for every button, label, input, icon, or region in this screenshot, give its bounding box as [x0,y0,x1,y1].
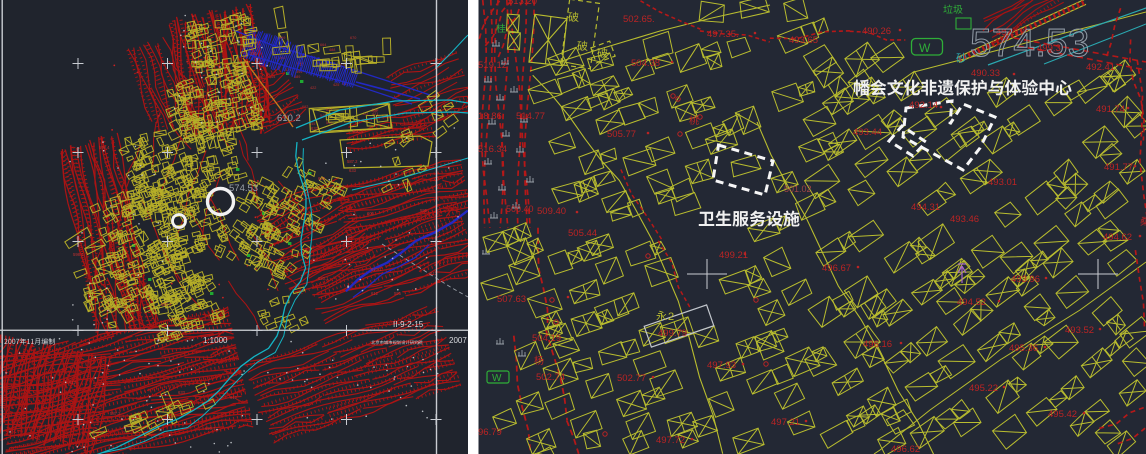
svg-text:612: 612 [230,395,238,400]
svg-text:497.93: 497.93 [707,360,736,371]
svg-text:18.86: 18.86 [478,111,502,122]
svg-text:514.77: 514.77 [516,111,545,122]
svg-text:504.38: 504.38 [631,58,660,69]
svg-text:493.65: 493.65 [789,35,818,46]
svg-text:610.2: 610.2 [277,113,301,124]
svg-text:605: 605 [188,88,196,93]
svg-text:505.44: 505.44 [568,228,597,239]
svg-text:633: 633 [318,176,326,181]
svg-text:620.1: 620.1 [371,267,382,272]
svg-text:504.19: 504.19 [532,333,561,344]
svg-text:2: 2 [668,311,674,323]
svg-text:497.21: 497.21 [771,417,800,428]
svg-text:670: 670 [350,36,356,40]
svg-text:491.74: 491.74 [1096,104,1125,115]
svg-text:495.36: 495.36 [1009,343,1038,354]
svg-text:501.02: 501.02 [784,184,812,194]
svg-text:612: 612 [69,380,77,385]
svg-text:574.53: 574.53 [970,22,1089,65]
svg-text:664: 664 [320,43,326,47]
svg-text:598.4: 598.4 [73,252,84,257]
svg-text:595: 595 [420,208,428,213]
svg-text:494.62: 494.62 [1103,232,1132,243]
svg-text:500.40: 500.40 [506,204,534,214]
svg-text:493.96: 493.96 [1011,274,1040,285]
svg-text:496.62: 496.62 [891,444,920,454]
svg-text:595: 595 [250,51,258,56]
svg-text:633: 633 [311,126,319,131]
svg-text:425: 425 [333,83,339,87]
svg-text:493.52: 493.52 [1065,325,1094,336]
svg-text:574.53: 574.53 [229,183,258,194]
svg-text:488: 488 [329,48,335,52]
svg-text:496.16: 496.16 [863,339,892,350]
svg-text:499.79: 499.79 [658,328,687,339]
svg-text:496.67: 496.67 [822,263,851,274]
svg-text:509.40: 509.40 [537,206,566,217]
svg-text:W: W [492,373,502,384]
svg-text:513.20: 513.20 [508,0,537,7]
svg-text:493.01: 493.01 [988,177,1017,188]
svg-text:502.77: 502.77 [617,373,646,384]
svg-text:620.1: 620.1 [205,426,216,431]
svg-text:505.77: 505.77 [607,129,636,140]
svg-text:499.21: 499.21 [719,250,748,261]
svg-text:516.34: 516.34 [478,144,507,155]
svg-text:492.41: 492.41 [1086,62,1115,73]
svg-text:507.63: 507.63 [497,294,526,305]
svg-text:620.1: 620.1 [353,129,364,134]
svg-text:633: 633 [178,390,186,395]
svg-text:490.33: 490.33 [971,68,1000,79]
svg-text:612: 612 [371,291,379,296]
svg-text:587.2: 587.2 [161,302,172,307]
svg-text:620.1: 620.1 [318,276,329,281]
svg-text:587.2: 587.2 [347,159,358,164]
svg-text:495.22: 495.22 [969,383,998,394]
svg-text:595: 595 [394,291,402,296]
svg-text:499.3: 499.3 [1037,43,1061,54]
svg-text:422: 422 [310,86,316,90]
svg-text:2007: 2007 [449,336,467,345]
svg-text:491.77: 491.77 [1104,162,1133,173]
svg-text:493.46: 493.46 [950,214,979,225]
svg-text:W: W [919,41,931,55]
svg-text:494.31: 494.31 [911,202,940,213]
svg-text:595: 595 [186,102,194,107]
svg-text:502.74: 502.74 [536,372,565,383]
svg-text:II-9-2-15: II-9-2-15 [393,320,424,329]
svg-text:96.79: 96.79 [478,427,502,438]
svg-text:605: 605 [367,211,375,216]
svg-text:490.26: 490.26 [862,26,891,37]
svg-text:495.42: 495.42 [1048,409,1077,420]
svg-text:633: 633 [349,168,357,173]
svg-text:494.52: 494.52 [957,297,986,308]
svg-text:497.35.: 497.35. [707,29,739,40]
svg-text:493.44: 493.44 [853,127,882,138]
svg-text:587.2: 587.2 [110,411,121,416]
svg-text:497.72: 497.72 [656,435,685,446]
svg-text:502.65.: 502.65. [623,14,655,25]
svg-text:492.14: 492.14 [909,100,938,111]
svg-text:519.12: 519.12 [478,60,507,71]
svg-text:1:1000: 1:1000 [203,336,228,345]
svg-text:598.4: 598.4 [99,145,110,150]
